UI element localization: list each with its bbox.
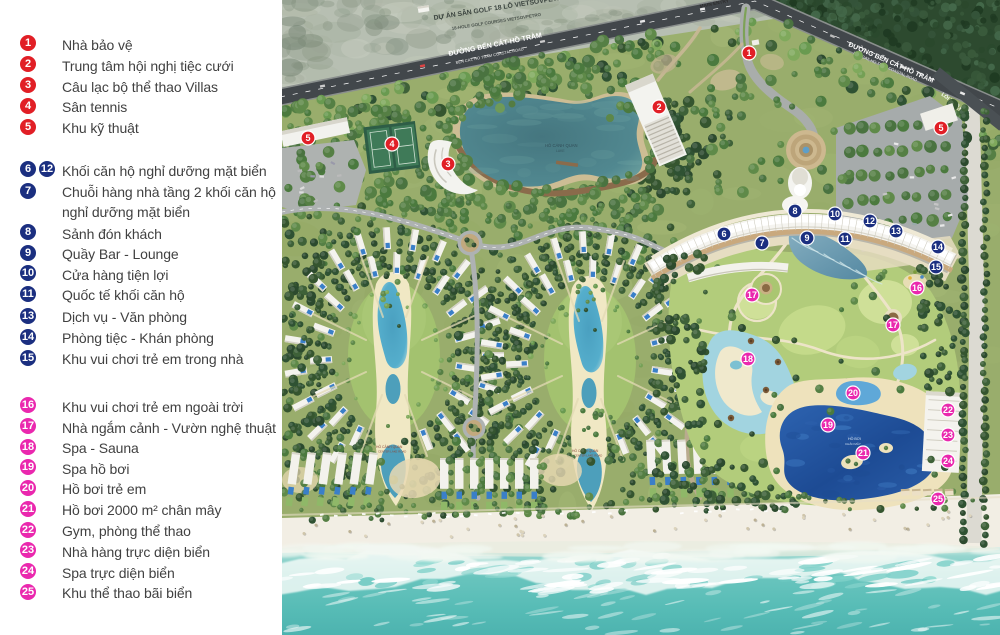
svg-text:HỒ CẢNH QUAN: HỒ CẢNH QUAN [545,143,578,148]
svg-text:HỒ CẢNH QUAN: HỒ CẢNH QUAN [376,444,403,449]
svg-text:CENTER LAKE ROAD: CENTER LAKE ROAD [378,450,406,454]
svg-text:CENTER LAKE ROAD: CENTER LAKE ROAD [574,454,602,458]
svg-text:LAKE: LAKE [556,149,565,153]
